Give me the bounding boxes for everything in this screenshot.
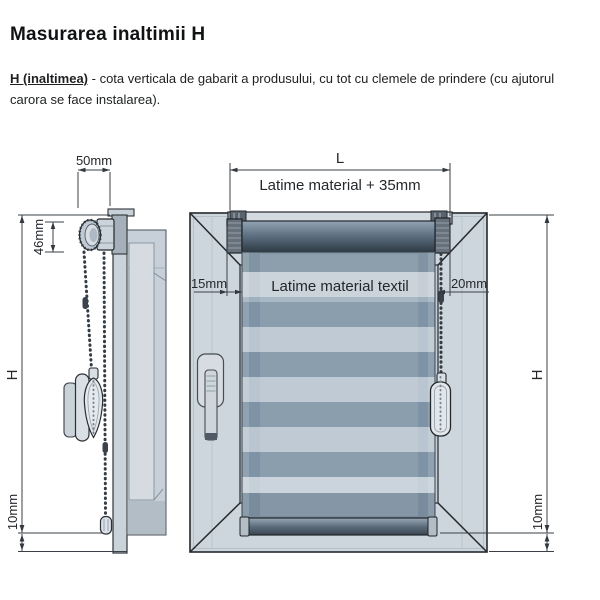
roller-tube (242, 221, 435, 252)
left-offset-label: 15mm (191, 276, 227, 291)
side-sash (129, 243, 154, 500)
dimension-bracket-depth: 50mm (76, 153, 112, 208)
clutch-mechanism (80, 219, 115, 250)
front-bottom-clearance-label: 10mm (530, 494, 545, 530)
bracket-depth-label: 50mm (76, 153, 112, 168)
roller-end-cap-left (227, 219, 242, 253)
front-view: L Latime material + 35mm 15mm Latime mat… (190, 150, 554, 552)
measurement-diagram: 50mm 46mm H 10mm (0, 0, 600, 600)
bottom-bar (240, 517, 437, 536)
total-width-label: L (336, 150, 344, 167)
total-width-note: Latime material + 35mm (259, 177, 420, 194)
right-offset-label: 20mm (451, 276, 487, 291)
side-wall-plate (113, 215, 127, 553)
dimension-clutch-diameter: 46mm (31, 219, 64, 255)
front-height-label: H (529, 370, 546, 381)
fabric-width-label: Latime material textil (271, 278, 409, 295)
side-height-label: H (4, 370, 21, 381)
side-bottom-clearance-label: 10mm (5, 494, 20, 530)
chain-stopper (101, 517, 112, 535)
dimension-bottom-clearance-front: 10mm (489, 494, 554, 552)
dimension-total-width: L Latime material + 35mm (230, 150, 450, 216)
side-view: 50mm 46mm H 10mm (4, 153, 166, 553)
roller-end-cap-right (435, 218, 450, 253)
clutch-diameter-label: 46mm (31, 219, 46, 255)
